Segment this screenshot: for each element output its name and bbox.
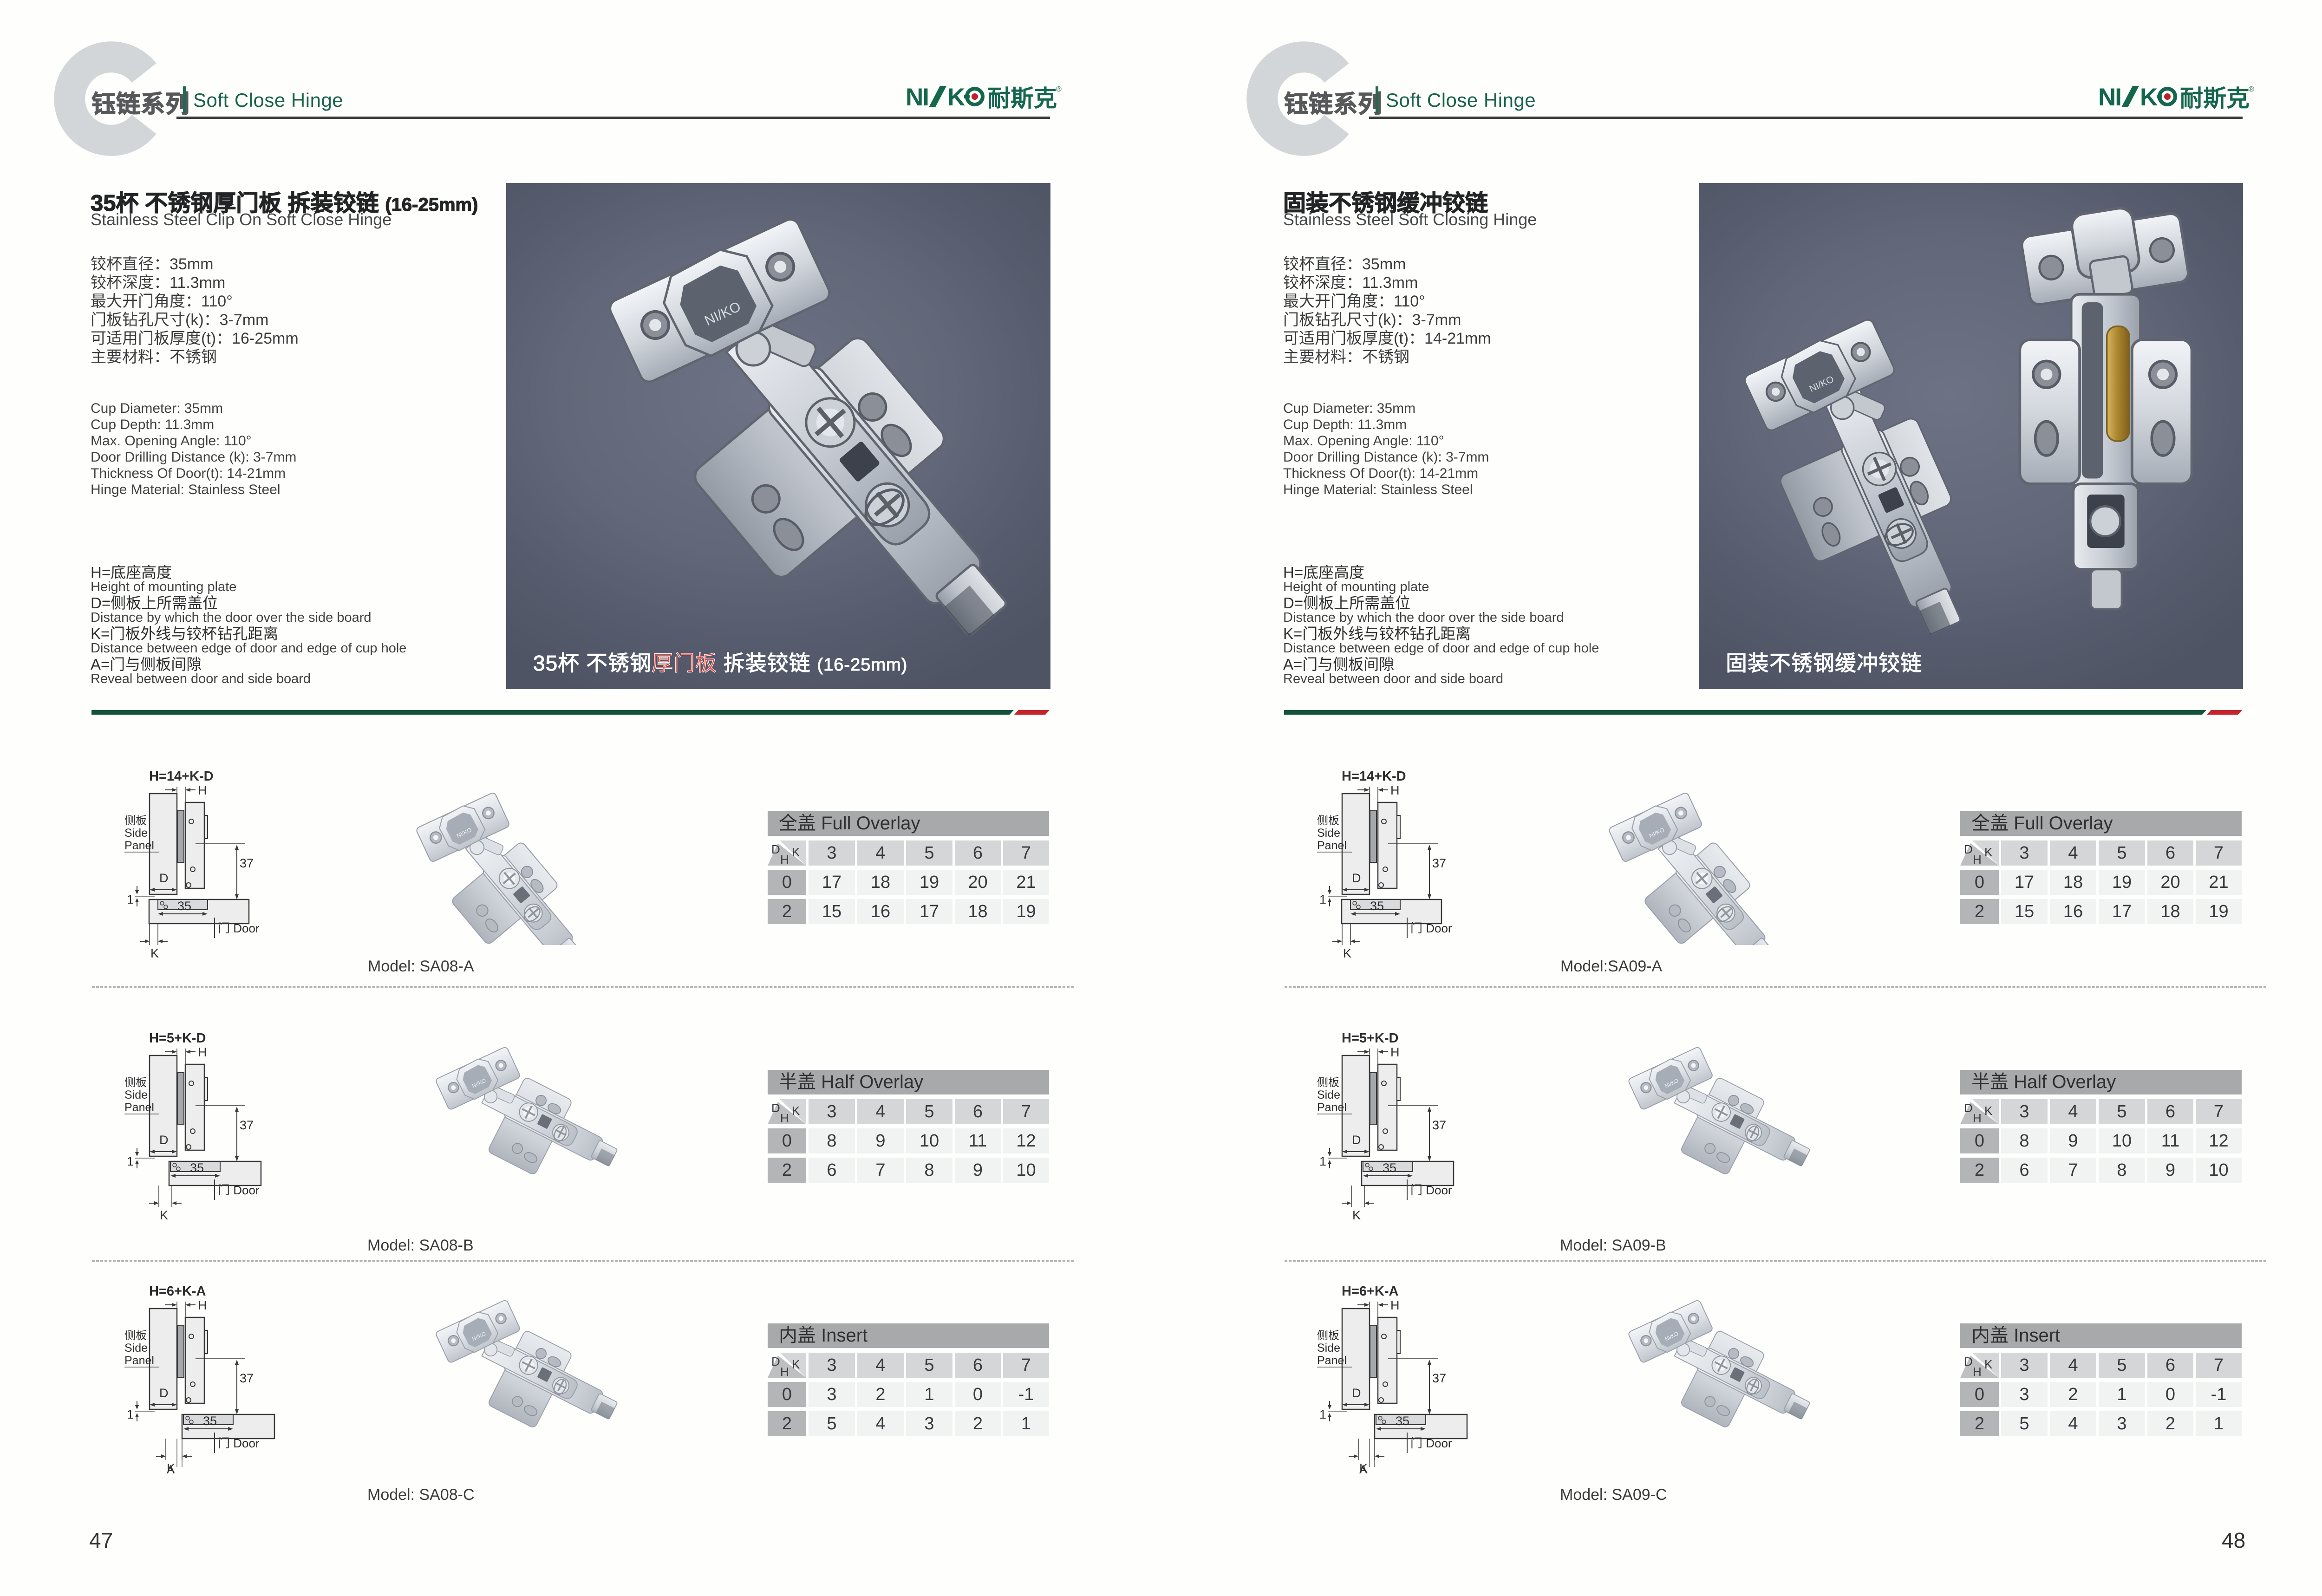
svg-text:1: 1	[1319, 892, 1326, 906]
svg-text:Panel: Panel	[124, 839, 154, 852]
svg-text:Panel: Panel	[1317, 1101, 1347, 1114]
svg-text:D: D	[1352, 871, 1361, 885]
svg-text:K: K	[1984, 845, 1993, 859]
svg-text:门 Door: 门 Door	[218, 1436, 260, 1450]
svg-text:1: 1	[127, 1154, 134, 1168]
svg-text:H=5+K-D: H=5+K-D	[1342, 1031, 1399, 1046]
svg-text:D: D	[1964, 1101, 1973, 1115]
svg-text:H: H	[1973, 1365, 1982, 1378]
svg-text:1: 1	[1319, 1407, 1326, 1421]
svg-text:35: 35	[1370, 899, 1384, 913]
svg-text:NI: NI	[906, 85, 928, 111]
svg-text:K: K	[792, 1357, 800, 1371]
svg-text:门 Door: 门 Door	[1410, 921, 1452, 935]
svg-text:H: H	[1973, 1111, 1982, 1124]
svg-text:门 Door: 门 Door	[218, 921, 260, 935]
svg-text:D: D	[159, 1386, 169, 1400]
svg-text:K: K	[150, 946, 159, 960]
svg-text:Side: Side	[1317, 1342, 1340, 1355]
svg-text:D: D	[1352, 1386, 1361, 1400]
svg-text:D: D	[1964, 1355, 1973, 1368]
svg-text:37: 37	[1432, 1371, 1446, 1385]
svg-text:1: 1	[127, 892, 134, 906]
svg-text:K: K	[792, 1104, 800, 1118]
svg-text:35: 35	[203, 1414, 217, 1428]
svg-text:侧板: 侧板	[124, 1076, 147, 1089]
svg-text:D: D	[1964, 842, 1973, 856]
svg-text:H: H	[198, 1045, 207, 1059]
svg-text:35: 35	[177, 899, 191, 913]
svg-text:K: K	[1984, 1357, 1993, 1371]
svg-text:D: D	[1352, 1133, 1361, 1147]
svg-text:侧板: 侧板	[124, 1329, 147, 1342]
svg-text:侧板: 侧板	[1317, 1076, 1339, 1089]
svg-text:Panel: Panel	[1317, 1354, 1347, 1367]
svg-text:K: K	[1343, 946, 1351, 960]
svg-text:1: 1	[1319, 1154, 1326, 1168]
svg-text:A: A	[167, 1463, 175, 1476]
svg-text:D: D	[771, 842, 780, 856]
svg-text:37: 37	[1432, 1118, 1446, 1132]
svg-text:门 Door: 门 Door	[218, 1183, 260, 1197]
svg-text:37: 37	[240, 1118, 254, 1132]
svg-text:H: H	[1390, 783, 1400, 797]
svg-text:门 Door: 门 Door	[1410, 1436, 1452, 1450]
svg-text:K: K	[792, 845, 800, 859]
svg-text:NI: NI	[2098, 85, 2121, 111]
svg-text:耐斯克: 耐斯克	[2180, 85, 2250, 111]
svg-text:D: D	[159, 1133, 169, 1147]
svg-text:A: A	[1359, 1463, 1367, 1476]
svg-text:Side: Side	[1317, 1088, 1340, 1101]
svg-text:®: ®	[2249, 85, 2254, 93]
svg-text:侧板: 侧板	[124, 814, 147, 827]
svg-text:H: H	[1390, 1298, 1400, 1312]
svg-text:Panel: Panel	[124, 1354, 154, 1367]
svg-text:耐斯克: 耐斯克	[987, 85, 1057, 111]
svg-text:Side: Side	[124, 827, 148, 840]
svg-text:®: ®	[1056, 85, 1062, 93]
svg-text:H=6+K-A: H=6+K-A	[1342, 1284, 1399, 1299]
svg-text:K: K	[1352, 1208, 1361, 1222]
svg-text:D: D	[159, 871, 169, 885]
svg-text:Panel: Panel	[124, 1101, 154, 1114]
svg-text:Panel: Panel	[1317, 839, 1347, 852]
svg-text:H: H	[780, 1111, 789, 1124]
svg-text:37: 37	[240, 1371, 254, 1385]
svg-text:H=14+K-D: H=14+K-D	[1342, 769, 1406, 784]
svg-text:1: 1	[127, 1407, 134, 1421]
svg-text:H: H	[1973, 853, 1982, 866]
svg-text:K: K	[947, 85, 965, 111]
svg-text:37: 37	[240, 856, 254, 870]
svg-text:H=14+K-D: H=14+K-D	[149, 769, 214, 784]
svg-text:35: 35	[1396, 1414, 1409, 1428]
svg-text:H: H	[198, 1298, 207, 1312]
svg-text:Side: Side	[124, 1342, 148, 1355]
svg-text:D: D	[771, 1355, 780, 1368]
svg-text:H: H	[780, 853, 789, 866]
svg-text:侧板: 侧板	[1317, 1329, 1339, 1342]
svg-text:侧板: 侧板	[1317, 814, 1339, 827]
svg-text:H: H	[198, 783, 207, 797]
svg-text:37: 37	[1432, 856, 1446, 870]
svg-text:K: K	[1984, 1104, 1993, 1118]
svg-text:H: H	[780, 1365, 789, 1378]
svg-text:Side: Side	[124, 1088, 148, 1101]
svg-text:H=6+K-A: H=6+K-A	[149, 1284, 206, 1299]
svg-text:H=5+K-D: H=5+K-D	[149, 1031, 206, 1046]
svg-text:门 Door: 门 Door	[1410, 1183, 1452, 1197]
svg-text:H: H	[1390, 1045, 1400, 1059]
svg-text:35: 35	[190, 1161, 204, 1175]
svg-text:D: D	[771, 1101, 780, 1115]
svg-text:Side: Side	[1317, 827, 1340, 840]
svg-text:K: K	[160, 1208, 168, 1222]
svg-text:K: K	[2140, 85, 2158, 111]
svg-text:35: 35	[1383, 1161, 1396, 1175]
